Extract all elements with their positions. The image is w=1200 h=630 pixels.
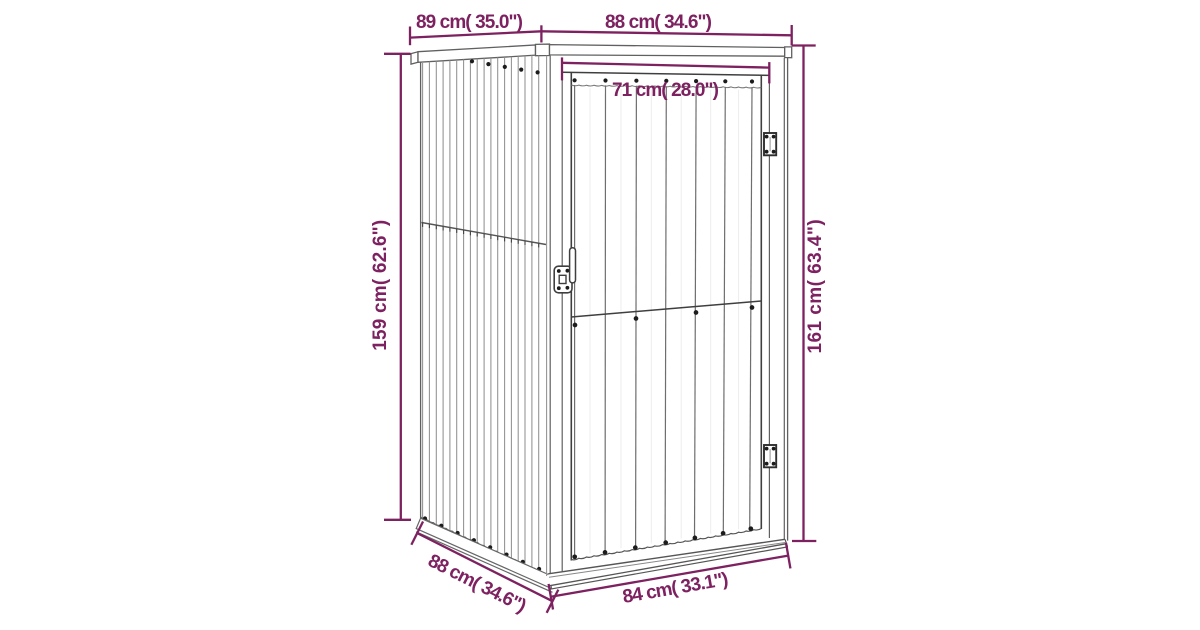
- svg-text:161 cm( 63.4"): 161 cm( 63.4"): [805, 219, 826, 354]
- svg-text:89 cm( 35.0"): 89 cm( 35.0"): [416, 12, 523, 33]
- svg-text:71 cm( 28.0"): 71 cm( 28.0"): [612, 80, 719, 101]
- svg-text:159 cm( 62.6"): 159 cm( 62.6"): [370, 220, 391, 351]
- svg-text:88 cm( 34.6"): 88 cm( 34.6"): [605, 12, 712, 33]
